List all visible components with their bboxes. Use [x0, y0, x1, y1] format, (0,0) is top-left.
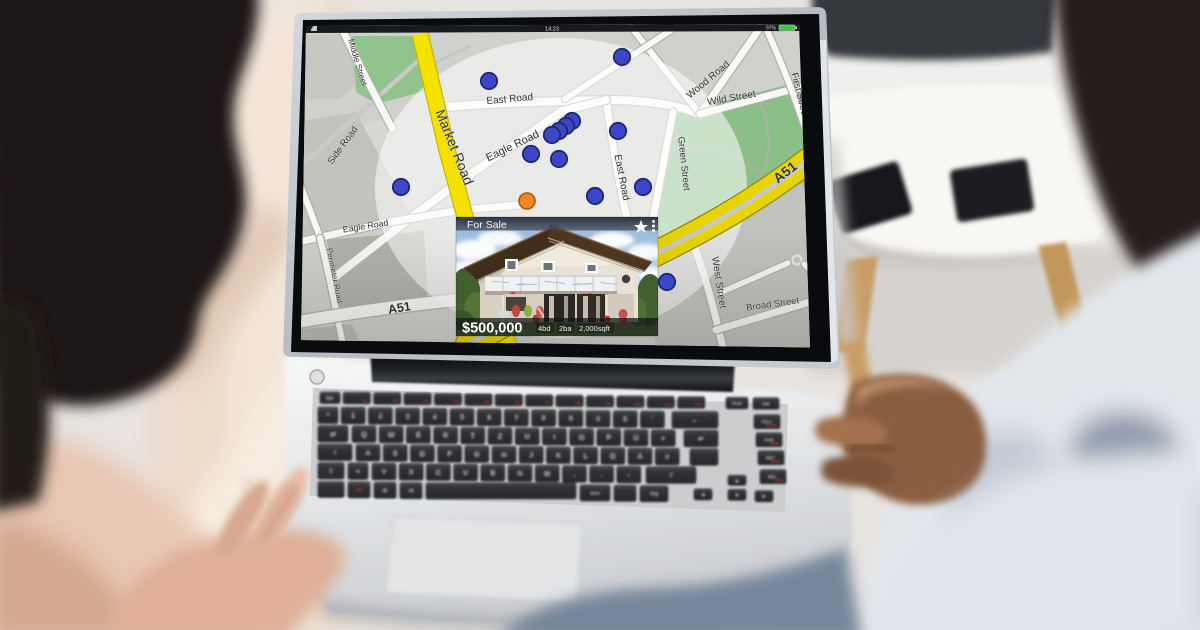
svg-text:⇩: ⇩	[333, 450, 337, 456]
svg-text:V: V	[463, 470, 468, 477]
svg-text:G: G	[474, 452, 479, 459]
svg-text:F10: F10	[635, 402, 641, 406]
svg-text:Endg: Endg	[775, 479, 783, 483]
svg-text:A: A	[366, 450, 371, 457]
svg-text:Druck: Druck	[732, 401, 742, 405]
svg-text:F1: F1	[363, 399, 367, 403]
svg-text:Q: Q	[361, 432, 366, 439]
svg-text:F3: F3	[424, 400, 428, 404]
svg-text:´: ´	[651, 418, 653, 424]
svg-text:97%: 97%	[766, 25, 777, 31]
svg-text:Esc: Esc	[327, 395, 334, 400]
svg-text:Pause: Pause	[767, 424, 777, 428]
svg-text:S: S	[393, 450, 398, 457]
svg-text:-: -	[628, 472, 630, 479]
svg-text:↵: ↵	[698, 436, 704, 443]
svg-text:►: ►	[762, 494, 766, 499]
svg-text:F2: F2	[394, 399, 398, 403]
svg-text:◄: ◄	[701, 492, 705, 497]
svg-text:C: C	[436, 470, 441, 477]
svg-text:H: H	[502, 452, 507, 459]
svg-text:Rollen: Rollen	[771, 460, 781, 464]
svg-text:⇄: ⇄	[330, 431, 335, 438]
svg-text:F4: F4	[454, 400, 458, 404]
svg-text:F9: F9	[606, 402, 610, 406]
svg-text:M: M	[544, 471, 549, 478]
svg-text:Ü: Ü	[634, 434, 639, 442]
svg-text:Y: Y	[382, 469, 387, 476]
svg-text:<: <	[356, 469, 360, 475]
svg-text:2,000sqft: 2,000sqft	[579, 324, 611, 333]
svg-text:ß: ß	[623, 417, 627, 423]
svg-text:F: F	[448, 451, 452, 458]
svg-text:W: W	[388, 432, 395, 439]
svg-text:▲: ▲	[735, 478, 739, 483]
svg-text:$500,000: $500,000	[462, 321, 522, 337]
svg-text:^: ^	[327, 413, 330, 419]
svg-text:F6: F6	[515, 401, 519, 405]
svg-text:Alt: Alt	[409, 488, 415, 493]
svg-text:I: I	[553, 434, 555, 441]
svg-text:F5: F5	[485, 400, 489, 404]
svg-text:T: T	[471, 433, 475, 440]
svg-text:D: D	[420, 451, 425, 458]
svg-text:+: +	[661, 435, 665, 442]
svg-text:K: K	[556, 453, 561, 460]
svg-text:J: J	[530, 452, 533, 459]
svg-text:14:23: 14:23	[545, 27, 559, 33]
svg-text:,: ,	[573, 471, 575, 478]
svg-text:.: .	[601, 472, 603, 479]
svg-text:F8: F8	[576, 402, 580, 406]
svg-text:Fn: Fn	[356, 488, 362, 493]
svg-text:F7: F7	[546, 401, 550, 405]
svg-text:⊞: ⊞	[383, 488, 387, 494]
svg-text:Entf: Entf	[763, 402, 771, 406]
svg-text:⇧: ⇧	[668, 472, 673, 479]
svg-text:Ä: Ä	[638, 453, 643, 461]
svg-text:O: O	[579, 434, 584, 441]
svg-text:B: B	[491, 470, 495, 477]
svg-text:F12: F12	[696, 403, 702, 407]
svg-text:L: L	[584, 453, 588, 460]
svg-text:F11: F11	[665, 403, 671, 407]
svg-text:E: E	[416, 432, 421, 439]
svg-text:Ö: Ö	[610, 452, 615, 460]
svg-text:P: P	[607, 435, 611, 442]
svg-text:Unde: Unde	[770, 442, 779, 446]
svg-text:#: #	[665, 454, 669, 461]
svg-text:U: U	[525, 434, 530, 441]
svg-text:For Sale: For Sale	[467, 219, 507, 231]
svg-text:4bd: 4bd	[538, 324, 551, 333]
svg-text:Z: Z	[498, 433, 502, 440]
svg-text:X: X	[409, 469, 414, 476]
svg-text:←: ←	[692, 417, 699, 424]
svg-text:⇧: ⇧	[328, 468, 333, 475]
svg-text:2ba: 2ba	[559, 324, 572, 333]
svg-text:Strg: Strg	[650, 491, 658, 496]
svg-text:N: N	[518, 471, 523, 478]
svg-text:AltGr: AltGr	[590, 490, 600, 495]
svg-text:R: R	[443, 433, 448, 440]
svg-text:▼: ▼	[735, 492, 739, 497]
